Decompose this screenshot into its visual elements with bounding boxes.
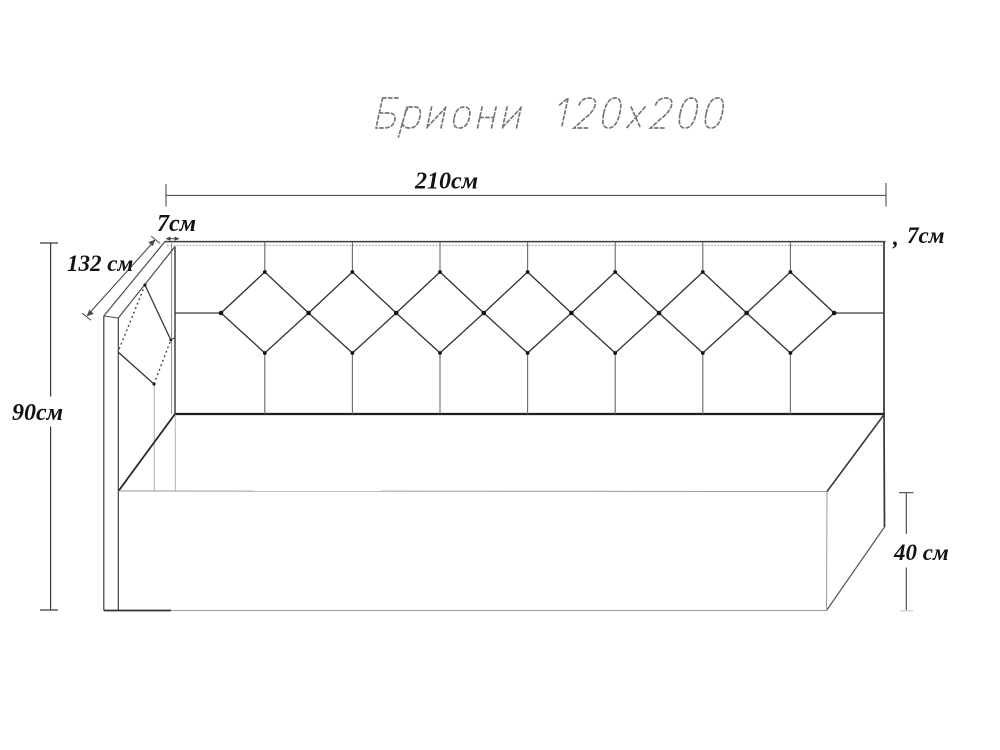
svg-text:,: ,: [892, 225, 899, 250]
svg-text:7см: 7см: [157, 211, 196, 237]
svg-text:7см: 7см: [907, 223, 944, 248]
svg-text:210см: 210см: [414, 169, 478, 195]
svg-text:40 см: 40 см: [893, 540, 949, 565]
svg-text:90см: 90см: [12, 400, 63, 426]
svg-text:132 см: 132 см: [67, 251, 133, 276]
